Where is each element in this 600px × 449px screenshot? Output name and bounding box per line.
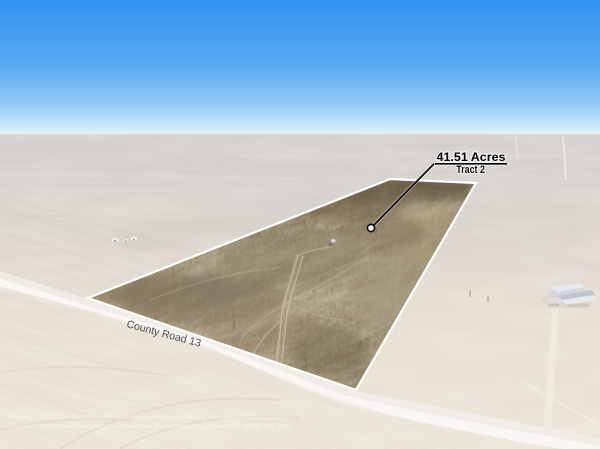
svg-text:This does not represent a surv: This does not represent a survey. Distan…: [7, 423, 291, 430]
svg-text:Property lines are an illustra: Property lines are an illustration inten…: [7, 414, 289, 421]
svg-text:Tract 2: Tract 2: [456, 164, 485, 176]
